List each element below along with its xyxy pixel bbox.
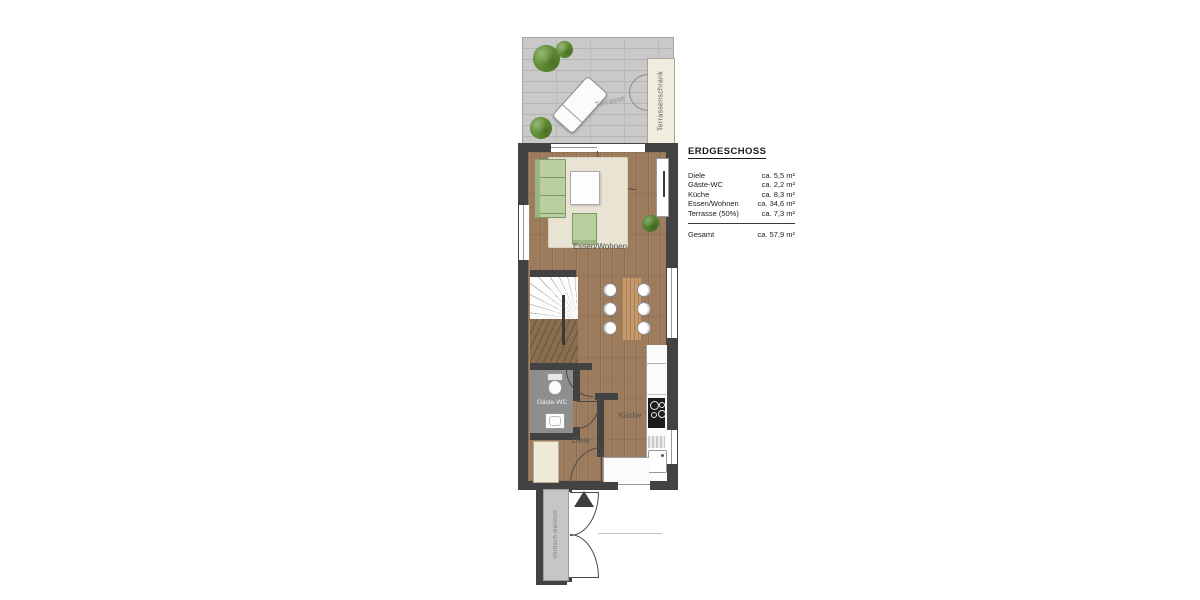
room-area: ca. 5,5 m²: [762, 171, 795, 180]
threshold-line: [598, 533, 662, 534]
dining-chair: [603, 321, 617, 335]
wc-wall: [530, 363, 592, 370]
toilet-bowl: [548, 380, 562, 395]
dining-chair: [637, 283, 651, 297]
room-name: Diele: [688, 171, 705, 180]
room-area: ca. 2,2 m²: [762, 180, 795, 189]
burner-icon: [651, 412, 657, 418]
room-name: Küche: [688, 190, 709, 199]
room-name: Essen/Wohnen: [688, 199, 739, 208]
room-name: Gäste-WC: [688, 180, 723, 189]
window-west: [519, 205, 529, 260]
wc-sink: [545, 413, 565, 429]
hallway-label: Diele: [566, 436, 596, 446]
legend-title: ERDGESCHOSS: [688, 146, 766, 159]
dining-chair: [603, 302, 617, 316]
window-kitchen-south: [618, 481, 650, 490]
counter-divider: [646, 363, 666, 364]
radiator: [656, 158, 669, 217]
terrace-glazing: [551, 144, 597, 152]
stairs-lower-flight: [530, 319, 578, 363]
total-label: Gesamt: [688, 230, 714, 239]
cooktop: [648, 398, 665, 428]
floorplan-canvas: Terrasse Terrassenschrank Essen/Wohnen G…: [0, 0, 1200, 600]
counter-divider: [646, 394, 666, 395]
porch-wall: [536, 489, 543, 585]
legend-row: Terrasse (50%) ca. 7,3 m²: [688, 209, 795, 218]
legend-row: Essen/Wohnen ca. 34,6 m²: [688, 199, 795, 208]
kitchen-sink: [648, 450, 667, 473]
legend-divider: [688, 223, 795, 224]
stairs-upper-flight: [530, 277, 578, 319]
burner-icon: [650, 401, 659, 410]
front-door-swing-arc: [570, 534, 599, 578]
sink-drainer: [648, 436, 665, 448]
burner-icon: [659, 402, 665, 408]
terrace-cabinet-label: Terrassenschrank: [648, 59, 674, 143]
covered-porch: Vordach-Bereich: [543, 489, 569, 581]
total-area: ca. 57,9 m²: [757, 230, 795, 239]
hallway-closet: [533, 441, 559, 483]
room-name: Terrasse (50%): [688, 209, 739, 218]
sofa: [535, 159, 566, 218]
room-area: ca. 8,3 m²: [762, 190, 795, 199]
bush-icon: [556, 41, 573, 58]
dining-chair: [637, 321, 651, 335]
terrace-cabinet: Terrassenschrank: [647, 58, 675, 144]
kitchen-wall: [595, 393, 618, 400]
legend-total-row: Gesamt ca. 57,9 m²: [688, 230, 795, 239]
porch-label: Vordach-Bereich: [544, 490, 568, 580]
stair-wall: [530, 270, 576, 277]
kitchen-counter: [603, 457, 649, 482]
bush-icon: [530, 117, 552, 139]
kitchen-label: Küche: [612, 411, 648, 421]
dining-chair: [637, 302, 651, 316]
room-area: ca. 34,6 m²: [757, 199, 795, 208]
living-room-label: Essen/Wohnen: [560, 242, 640, 252]
legend-row: Diele ca. 5,5 m²: [688, 171, 795, 180]
armchair: [572, 213, 597, 245]
dining-chair: [603, 283, 617, 297]
stair-railing: [562, 295, 565, 345]
front-door-swing-arc: [570, 492, 599, 536]
area-legend: ERDGESCHOSS Diele ca. 5,5 m² Gäste-WC ca…: [688, 141, 795, 239]
room-area: ca. 7,3 m²: [762, 209, 795, 218]
burner-icon: [658, 410, 666, 418]
window-dining: [667, 268, 677, 338]
wc-label: Gäste-WC: [529, 398, 575, 408]
legend-row: Küche ca. 8,3 m²: [688, 190, 795, 199]
window-kitchen-side: [667, 430, 677, 464]
legend-row: Gäste-WC ca. 2,2 m²: [688, 180, 795, 189]
coffee-table: [570, 171, 600, 205]
